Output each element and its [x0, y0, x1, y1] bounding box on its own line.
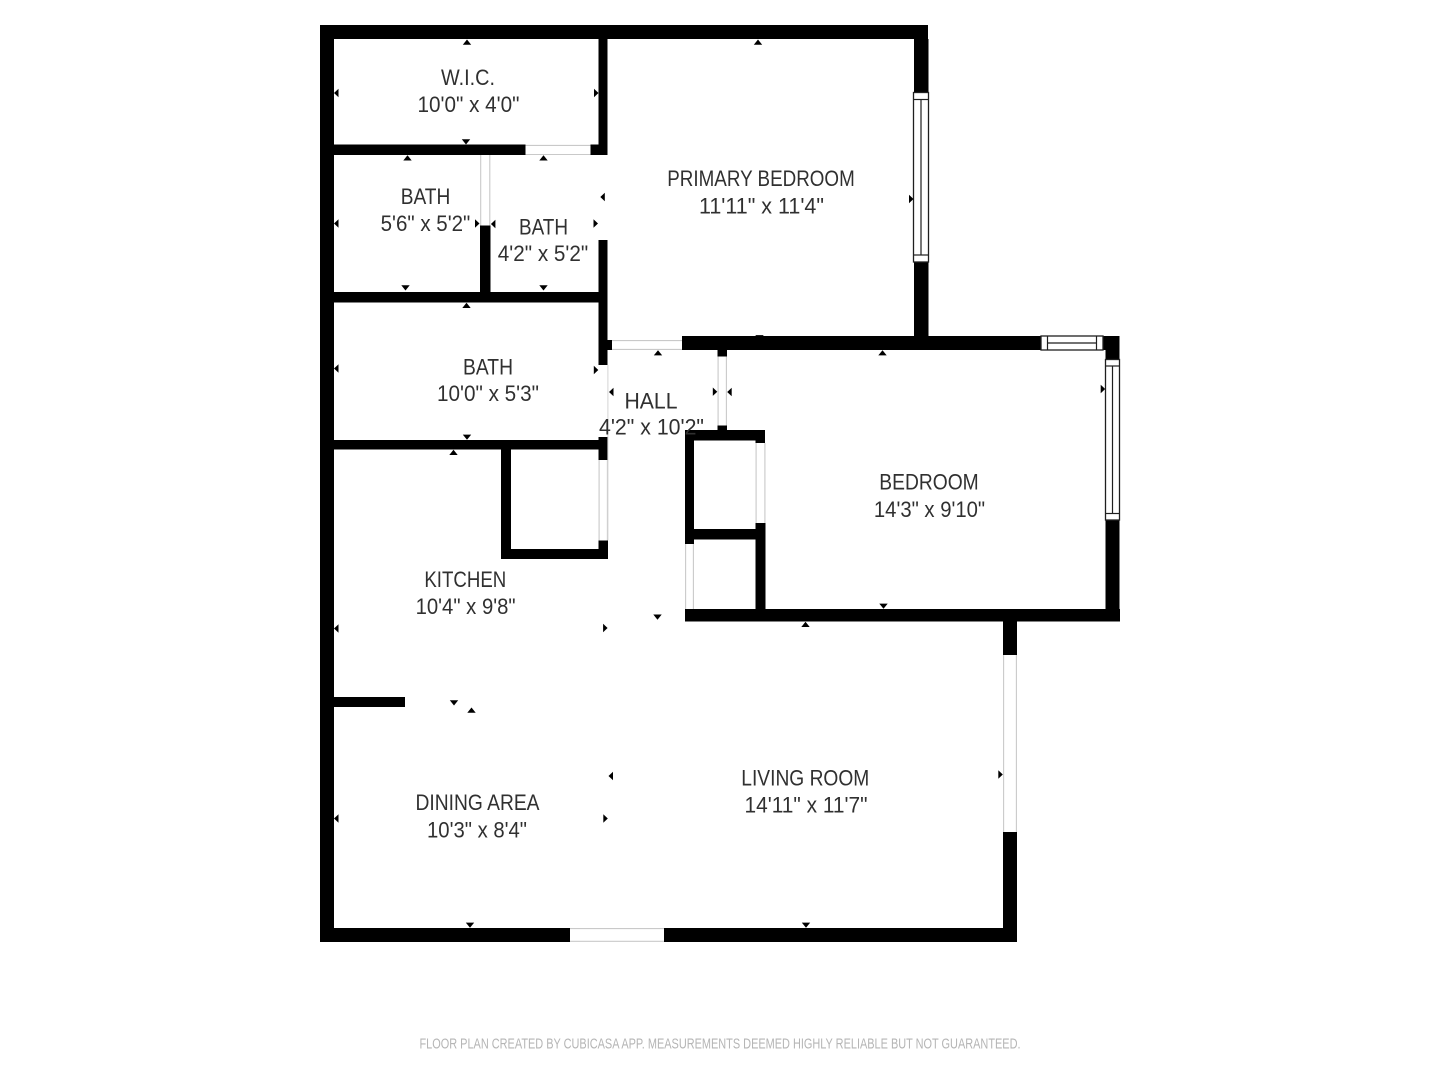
svg-text:HALL: HALL [625, 388, 678, 413]
svg-text:10'0" x 5'3": 10'0" x 5'3" [437, 381, 539, 406]
svg-text:BATH: BATH [401, 184, 451, 209]
svg-text:10'3" x 8'4": 10'3" x 8'4" [427, 818, 527, 843]
svg-text:KITCHEN: KITCHEN [424, 567, 506, 592]
svg-text:FLOOR PLAN CREATED BY CUBICASA: FLOOR PLAN CREATED BY CUBICASA APP. MEAS… [420, 1036, 1021, 1052]
svg-text:4'2" x 5'2": 4'2" x 5'2" [498, 241, 588, 266]
svg-text:5'6" x 5'2": 5'6" x 5'2" [381, 211, 471, 236]
svg-text:10'0" x 4'0": 10'0" x 4'0" [418, 92, 520, 117]
svg-text:14'3" x 9'10": 14'3" x 9'10" [874, 497, 985, 522]
svg-text:14'11" x 11'7": 14'11" x 11'7" [745, 793, 868, 818]
svg-text:4'2" x 10'2": 4'2" x 10'2" [599, 414, 704, 439]
svg-text:W.I.C.: W.I.C. [441, 65, 495, 90]
svg-text:LIVING ROOM: LIVING ROOM [741, 765, 869, 790]
svg-text:BATH: BATH [463, 354, 513, 379]
svg-text:BEDROOM: BEDROOM [879, 469, 978, 494]
svg-text:DINING AREA: DINING AREA [416, 790, 541, 815]
svg-text:BATH: BATH [519, 215, 568, 240]
svg-text:PRIMARY BEDROOM: PRIMARY BEDROOM [667, 166, 855, 191]
svg-text:11'11" x 11'4": 11'11" x 11'4" [699, 194, 824, 219]
svg-text:10'4" x 9'8": 10'4" x 9'8" [416, 594, 516, 619]
